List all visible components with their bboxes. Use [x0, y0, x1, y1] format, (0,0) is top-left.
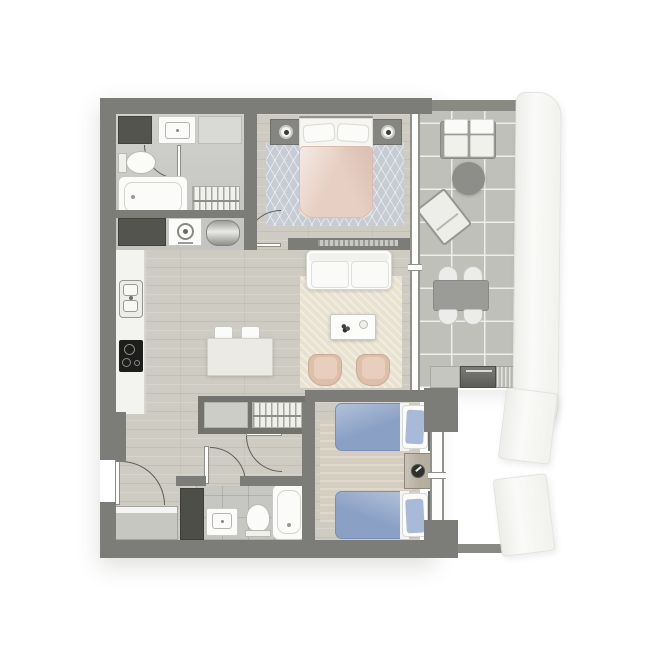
wall-top-balcony: [432, 100, 516, 111]
wall-laundry-top: [116, 210, 244, 218]
decor-plant: [340, 322, 351, 333]
wall-bathroom2-top-left: [176, 476, 206, 486]
outdoor-sofa-back-cushion: [444, 119, 468, 134]
cooktop: [119, 340, 143, 372]
floor-plan-canvas: [0, 0, 658, 658]
wall-vent-hatch: [318, 240, 398, 246]
laundry-dark-cabinet: [118, 218, 166, 246]
outdoor-sofa: [440, 121, 496, 159]
sink-drain-dot: [176, 129, 179, 132]
round-side-table: [452, 162, 485, 195]
bathroom1-shelf-unit: [198, 116, 242, 144]
bathtub-drain: [131, 195, 135, 199]
faucet-dot: [129, 296, 133, 300]
armchair: [308, 354, 342, 386]
dining-table: [207, 338, 273, 376]
bathtub-drain: [287, 523, 291, 527]
hanger-rod: [253, 415, 301, 417]
tall-dark-cabinet: [180, 488, 204, 540]
bbq-counter-cabinet: [430, 366, 460, 388]
twin-bed-top-duvet: [335, 403, 403, 451]
outdoor-sofa-seat: [470, 135, 494, 157]
bathtub-inner: [277, 490, 301, 534]
window-living-balcony: [410, 114, 420, 390]
armchair: [356, 354, 390, 386]
wall-bedroom2-left: [302, 402, 315, 542]
table-lamp: [411, 464, 425, 478]
grill-handle: [466, 370, 492, 372]
kitchen-counter: [116, 250, 146, 414]
hall-closet-shelves: [204, 402, 248, 428]
twin-bed-bottom-duvet: [335, 491, 403, 539]
sofa: [306, 250, 392, 290]
bbq-grill: [460, 366, 496, 388]
bathroom2-sink: [206, 508, 238, 536]
lounge-chair-fold: [436, 213, 459, 231]
burner-3: [134, 360, 140, 366]
bathroom2-bathtub: [272, 484, 306, 540]
lamp-center-dot: [284, 130, 289, 135]
entry-console: [114, 506, 178, 540]
vanity-dark-cabinet: [118, 116, 152, 144]
door-leaf-master-bathroom: [177, 145, 181, 179]
sink-bowl-bottom: [123, 300, 138, 312]
outdoor-dining-table: [433, 280, 489, 311]
facade-panel-lower: [492, 473, 555, 557]
wall-block-bedroom2-corner: [424, 520, 458, 558]
lamp-center-dot: [386, 130, 391, 135]
sink-bowl-top: [123, 284, 138, 296]
sink-drain-dot: [221, 520, 224, 523]
hall-closet-hangers: [252, 402, 302, 428]
armchair-seat: [362, 357, 385, 379]
washing-machine: [168, 218, 202, 246]
toilet2-tank: [245, 530, 271, 537]
nightstand: [270, 119, 300, 145]
window-mullion: [428, 472, 446, 479]
facade-panel-upper: [498, 387, 558, 465]
window-mullion: [408, 264, 422, 271]
wall-top: [100, 98, 432, 114]
pillow: [336, 123, 369, 143]
wall-bathroom2-top-right: [240, 476, 304, 486]
pillow-blue-inner: [405, 499, 425, 534]
wall-left: [100, 98, 116, 460]
wall-bedroom2-top: [305, 390, 432, 402]
bathroom1-sink: [158, 116, 196, 144]
bedroom2-nightstand: [404, 453, 431, 489]
armchair-seat: [314, 357, 337, 379]
duvet-pink: [299, 146, 373, 218]
nightstand: [372, 119, 402, 145]
toilet2-bowl: [246, 504, 270, 532]
toilet-bowl: [126, 151, 156, 174]
washer-panel: [178, 242, 193, 244]
coffee-table: [330, 314, 376, 340]
facade-band-right: [512, 92, 562, 434]
burner-2: [122, 358, 131, 367]
pillow-blue-inner: [405, 410, 425, 445]
burner-1: [124, 344, 135, 355]
wall-entry-stub: [116, 412, 126, 462]
outdoor-sofa-seat: [444, 135, 468, 157]
pillow: [302, 123, 335, 144]
water-heater: [206, 220, 240, 246]
hanger-rod: [193, 200, 239, 202]
wall-bathroom1-right: [244, 114, 257, 250]
sofa-cushion: [351, 261, 389, 288]
washer-door-center: [183, 229, 188, 234]
decor-bowl: [359, 320, 368, 329]
console-front-edge: [115, 507, 177, 513]
outdoor-sofa-back-cushion: [470, 119, 494, 134]
kitchen-sink: [119, 280, 143, 318]
door-leaf-entry: [115, 459, 120, 505]
wall-bottom: [100, 540, 458, 558]
sofa-cushion: [311, 261, 349, 288]
